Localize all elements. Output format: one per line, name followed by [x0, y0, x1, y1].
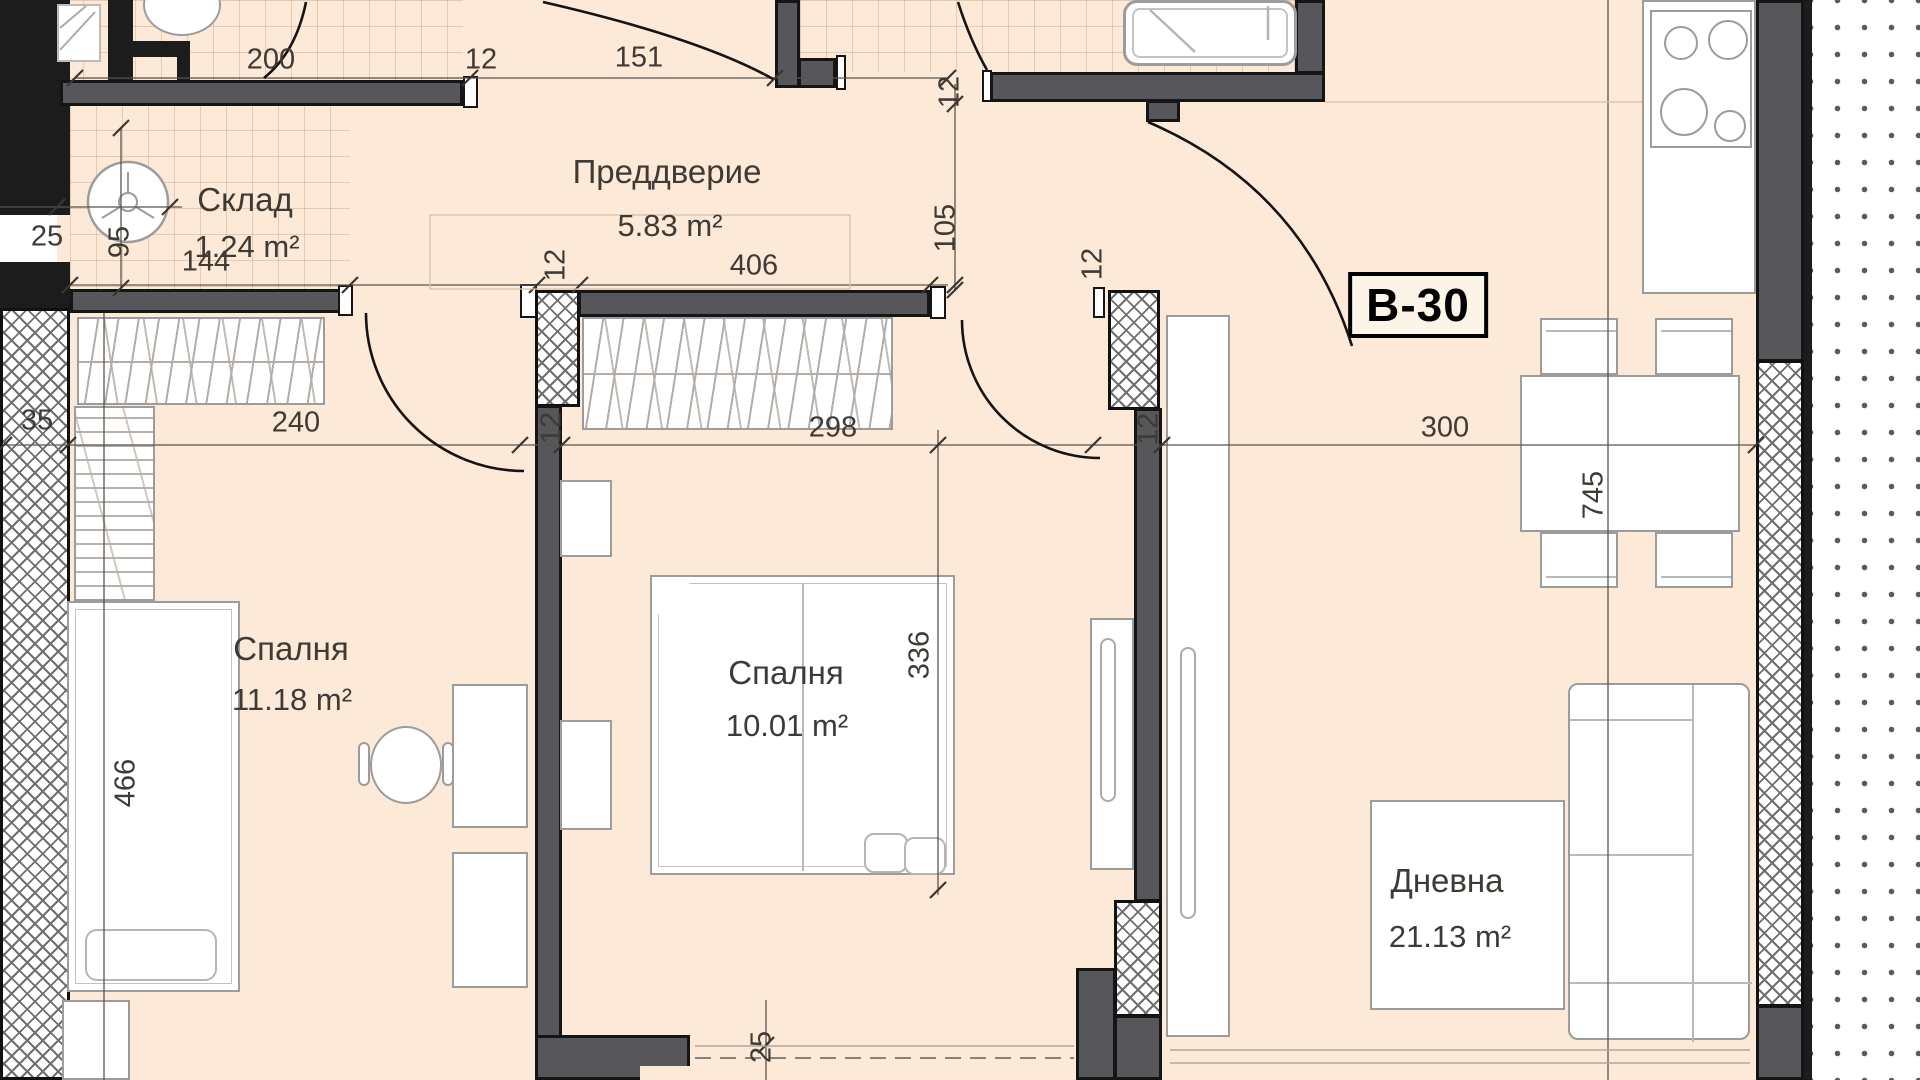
dresser: [452, 852, 528, 988]
door-jamb: [463, 76, 478, 108]
dim-151: 151: [615, 42, 663, 75]
bath2-door-stop: [1146, 100, 1180, 122]
chair: [370, 726, 442, 804]
door-jamb: [930, 286, 946, 319]
room-name-bedroom2: Спалня: [728, 654, 843, 692]
balcony-floor: [1812, 0, 1920, 1080]
tv-icon: [1180, 647, 1196, 919]
living-divider-wall: [1134, 408, 1162, 902]
tv-icon: [1100, 638, 1116, 802]
room-name-hall: Преддверие: [573, 153, 762, 191]
room-name-bedroom1: Спалня: [233, 630, 348, 668]
wall-top-left: [60, 80, 463, 106]
dining-chair: [1540, 532, 1618, 588]
storage-bottom-wall: [70, 289, 350, 313]
right-wall-insulation: [1756, 360, 1804, 1007]
dim-200: 200: [247, 44, 295, 77]
dining-chair: [1540, 318, 1618, 375]
bedroom-divider-wall: [535, 405, 562, 1038]
entry-wall-foot: [798, 58, 836, 88]
dining-table: [1520, 375, 1740, 532]
chair-armrest: [358, 742, 370, 786]
dining-chair: [1655, 532, 1733, 588]
room-area-living: 21.13 m²: [1389, 919, 1511, 955]
room-name-storage: Склад: [197, 181, 293, 219]
dim-105: 105: [930, 204, 963, 252]
sofa: [1568, 683, 1750, 1040]
dim-466: 466: [110, 759, 143, 807]
blanket-fold: [652, 577, 696, 621]
wall-notch: [640, 1066, 690, 1080]
dim-745: 745: [1578, 471, 1611, 519]
dim-25: 25: [746, 1031, 779, 1063]
door-jamb: [836, 55, 846, 90]
dim-240: 240: [272, 407, 320, 440]
room-area-bedroom2: 10.01 m²: [726, 708, 848, 744]
desk: [452, 684, 528, 828]
nightstand: [560, 720, 612, 830]
right-wall-bottom: [1756, 1005, 1804, 1080]
shower-tray-icon: [1123, 0, 1297, 66]
rug: [1370, 800, 1565, 1010]
sink-icon: [57, 4, 101, 62]
pillow: [85, 929, 217, 981]
nightstand: [560, 480, 612, 557]
dim-12: 12: [1077, 248, 1110, 280]
facade-edge-line: [1804, 0, 1812, 1080]
right-wall-top: [1756, 0, 1804, 362]
room-area-hall: 5.83 m²: [617, 208, 722, 244]
stove-icon: [1650, 10, 1752, 148]
dim-12: 12: [1133, 413, 1166, 445]
floor-plan: Склад 1.24 m² Преддверие 5.83 m² Спалня …: [0, 0, 1920, 1080]
shelf-unit: [74, 406, 155, 601]
bed: [67, 601, 240, 992]
tv-cabinet: [1090, 618, 1134, 870]
media-cabinet: [1166, 315, 1230, 1037]
column-insulated: [535, 290, 580, 407]
dim-25: 25: [31, 221, 63, 254]
door-jamb: [1093, 287, 1105, 318]
hall-bottom-wall: [578, 290, 930, 317]
dim-12: 12: [536, 412, 569, 444]
dim-95: 95: [104, 226, 137, 258]
dim-300: 300: [1421, 412, 1469, 445]
nightstand: [62, 1000, 130, 1080]
bottom-mid-wall-a: [1076, 968, 1116, 1080]
dim-144: 144: [182, 246, 230, 279]
wardrobe: [77, 317, 325, 405]
pillow: [864, 833, 908, 873]
room-name-living: Дневна: [1390, 862, 1503, 900]
pillow: [904, 837, 946, 875]
bath2-wall: [990, 72, 1325, 102]
dim-12: 12: [465, 44, 497, 77]
column-insulated: [1114, 900, 1162, 1017]
entry-wall-post: [775, 0, 800, 88]
dim-406: 406: [730, 250, 778, 283]
unit-label: B-30: [1348, 272, 1488, 338]
column-insulated: [1108, 290, 1160, 410]
door-jamb: [338, 285, 353, 316]
bottom-mid-wall-b: [1114, 1015, 1162, 1080]
room-area-bedroom1: 11.18 m²: [232, 682, 352, 718]
dim-35: 35: [21, 405, 53, 438]
dining-chair: [1655, 318, 1733, 375]
dim-298: 298: [809, 412, 857, 445]
dim-336: 336: [904, 631, 937, 679]
dim-12: 12: [540, 249, 573, 281]
dim-12: 12: [934, 76, 967, 108]
bath2-wall-right: [1295, 0, 1325, 74]
left-wall-cap: [0, 262, 70, 308]
